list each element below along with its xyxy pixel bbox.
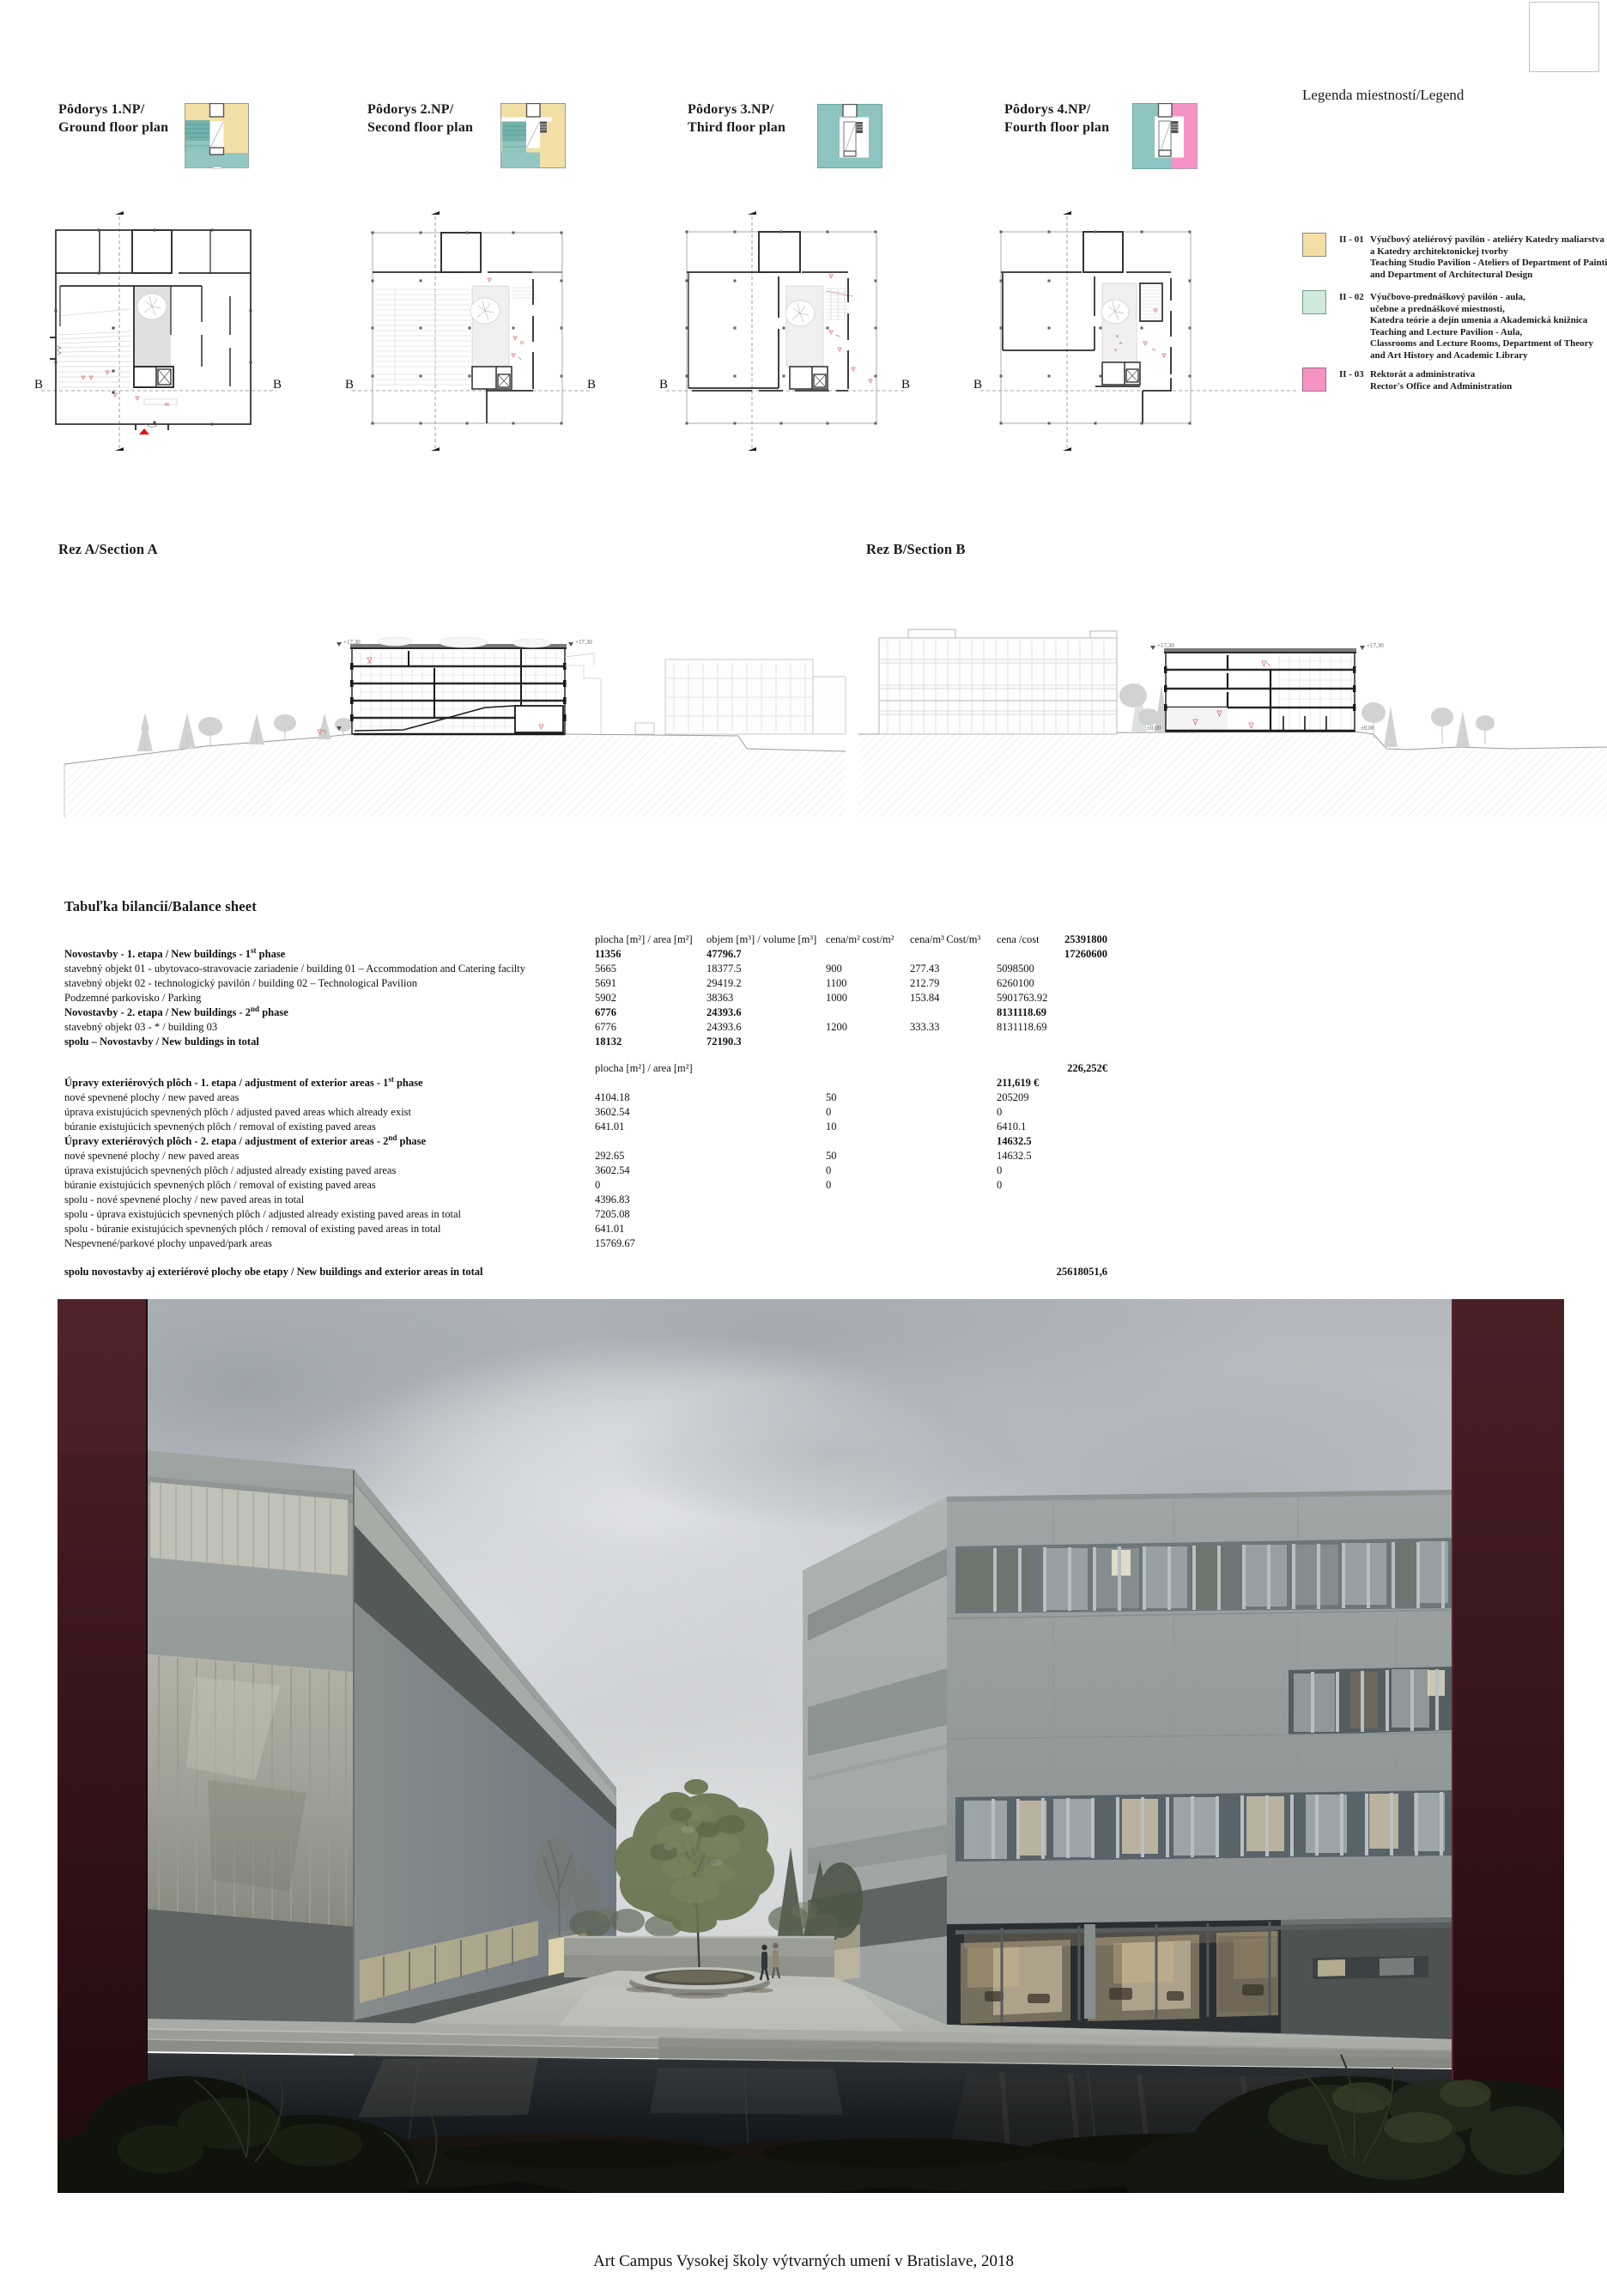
svg-text:+17,30: +17,30	[575, 639, 592, 646]
svg-text:+17,30: +17,30	[1157, 642, 1174, 649]
svg-text:±0,00: ±0,00	[1361, 725, 1375, 732]
svg-text:B: B	[587, 378, 596, 392]
svg-text:B: B	[659, 378, 668, 392]
svg-text:B: B	[345, 378, 354, 392]
svg-text:B: B	[901, 378, 910, 392]
svg-text:+17,30: +17,30	[1367, 642, 1384, 649]
svg-text:B: B	[34, 378, 43, 392]
svg-text:B: B	[973, 378, 982, 392]
svg-text:+17,30: +17,30	[343, 639, 361, 646]
svg-text:±0,00: ±0,00	[1147, 725, 1161, 732]
svg-text:B: B	[273, 378, 282, 392]
